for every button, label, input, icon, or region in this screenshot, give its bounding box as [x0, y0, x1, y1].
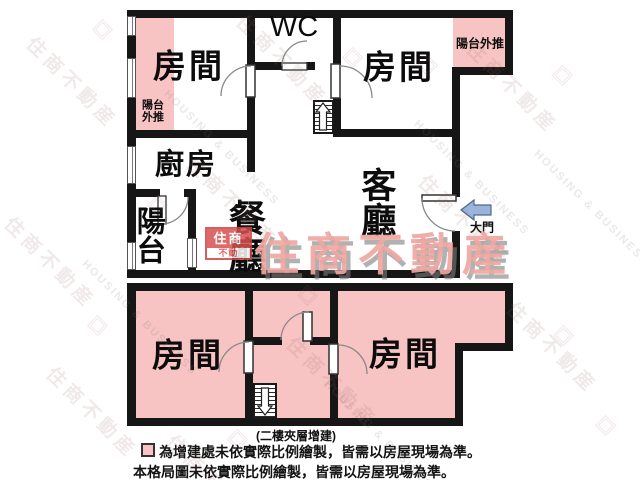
- diagonal-logo-mark: [552, 65, 573, 86]
- wall-segment: [455, 343, 463, 426]
- brand-logo-bottom: 不動: [207, 248, 250, 259]
- door-leaf: [282, 63, 307, 70]
- wall-segment: [341, 129, 452, 137]
- room-label-kitchen: 廚房: [155, 150, 217, 180]
- diagonal-watermark: 住商不動産: [501, 295, 605, 399]
- legend-line-2: 本格局圖未依實際比例繪製，皆需以房屋現場為準。: [133, 462, 455, 480]
- wall-segment: [505, 10, 513, 75]
- wall-segment: [245, 291, 253, 342]
- door-arc: [282, 41, 307, 66]
- door-leaf: [422, 195, 456, 201]
- door-leaf: [331, 64, 340, 98]
- label-balcony-pushout-right: 陽台外推: [456, 38, 504, 51]
- door-leaf: [246, 65, 255, 97]
- diagonal-watermark: 住商不動産: [0, 210, 103, 314]
- diagonal-logo-mark: [342, 47, 363, 68]
- brand-logo: 住商 不動: [205, 227, 252, 260]
- label-balcony-pushout-left: 陽台外推: [140, 100, 166, 123]
- wall-segment: [247, 10, 255, 66]
- wall-segment: [255, 62, 283, 70]
- door-arc: [161, 197, 188, 224]
- legend-line-1: 為增建處未依實際比例繪製，皆需以房屋現場為準。: [159, 442, 481, 462]
- wall-segment: [127, 283, 136, 426]
- wall-segment: [333, 98, 341, 137]
- wall-segment: [505, 283, 513, 351]
- diagonal-logo-mark: [87, 315, 108, 336]
- diagonal-logo-mark: [595, 415, 616, 436]
- wall-segment: [245, 372, 253, 418]
- window-mark: [127, 58, 136, 98]
- wall-segment: [330, 291, 338, 345]
- diagonal-watermark: 住商不動産: [21, 30, 125, 134]
- wall-segment: [188, 268, 196, 278]
- wall-segment: [306, 62, 315, 70]
- diagonal-logo-mark: [553, 325, 574, 346]
- door-arc: [221, 66, 251, 96]
- wall-segment: [128, 283, 513, 291]
- wall-segment: [455, 343, 513, 351]
- window-mark: [127, 16, 136, 36]
- stairs-down: [253, 383, 277, 419]
- wall-segment: [333, 10, 341, 65]
- wall-segment: [184, 189, 196, 197]
- room-label-bedroom-mezz-left: 房間: [152, 339, 224, 374]
- window-mark: [187, 238, 197, 268]
- wall-segment: [453, 67, 513, 75]
- wall-segment: [188, 197, 196, 238]
- wall-segment: [452, 67, 460, 197]
- wall-segment: [253, 337, 282, 345]
- stairs-up: [313, 100, 334, 134]
- wall-segment: [128, 10, 513, 18]
- diagonal-watermark-en: HOUSING & BUSINESS: [532, 148, 640, 268]
- wall-segment: [136, 189, 160, 197]
- room-label-balcony: 陽台: [133, 206, 163, 264]
- room-label-bedroom-top-right: 房間: [363, 51, 435, 86]
- legend-swatch: [141, 443, 155, 457]
- wall-segment: [330, 374, 338, 418]
- diagonal-logo-mark: [92, 19, 113, 40]
- entrance-arrow-icon: [461, 200, 491, 220]
- floor-plan-image: 房間 房間 WC 廚房 陽台 餐廳 客廳 陽台外推 陽台外推 大門 房間 房間 …: [0, 0, 640, 480]
- window-mark: [127, 146, 136, 184]
- room-label-bedroom-top-left: 房間: [153, 50, 225, 85]
- room-label-wc: WC: [270, 12, 318, 42]
- brand-watermark-text: 住商不動産: [254, 218, 514, 283]
- wall-segment: [128, 418, 463, 426]
- room-label-bedroom-mezz-right: 房間: [369, 338, 441, 373]
- brand-logo-top: 住商: [207, 229, 250, 248]
- wall-segment: [136, 130, 255, 138]
